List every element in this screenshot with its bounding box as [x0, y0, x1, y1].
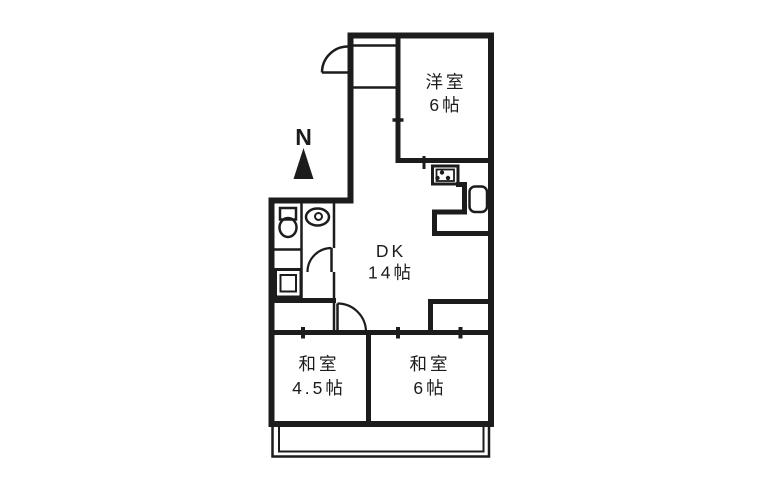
washroom-door-arc	[308, 248, 332, 272]
hall-door	[338, 304, 367, 333]
kitchen-counter-walls	[435, 185, 491, 234]
room-label-japanese-small-name: 和室	[299, 354, 340, 374]
genkan-step-lines	[354, 46, 397, 88]
floorplan-svg: N 洋室 6帖 DK 14帖 和室 4.5帖 和室 6帖	[0, 0, 764, 491]
kitchen-sink-icon	[470, 187, 488, 213]
room-label-japanese-large-name: 和室	[410, 354, 451, 374]
room-label-japanese-small-size: 4.5帖	[292, 378, 346, 398]
vanity-sink-icon	[306, 209, 329, 226]
room-label-western: 洋室 6帖	[426, 72, 467, 115]
room-label-dk: DK 14帖	[368, 241, 414, 283]
room-label-japanese-large: 和室 6帖	[410, 354, 451, 398]
room-label-dk-size: 14帖	[368, 263, 414, 283]
room-label-western-size: 6帖	[429, 95, 462, 115]
compass: N	[294, 124, 314, 179]
entrance-door	[322, 47, 348, 73]
compass-north-icon	[294, 148, 314, 179]
balcony-inner-rail	[279, 423, 484, 452]
room-label-dk-name: DK	[376, 241, 406, 261]
room-label-japanese-large-size: 6帖	[413, 378, 446, 398]
stove-icon	[433, 166, 459, 184]
washer-pan-icon	[276, 270, 302, 298]
hall-door-arc	[338, 304, 367, 333]
floorplan-canvas: N 洋室 6帖 DK 14帖 和室 4.5帖 和室 6帖	[0, 0, 764, 491]
room-label-japanese-small: 和室 4.5帖	[292, 354, 346, 398]
balcony	[273, 423, 490, 457]
toilet-icon	[280, 208, 297, 237]
washroom-door	[308, 248, 332, 272]
entrance-door-arc	[322, 47, 348, 73]
compass-label: N	[295, 124, 312, 150]
room-label-western-name: 洋室	[426, 72, 467, 92]
